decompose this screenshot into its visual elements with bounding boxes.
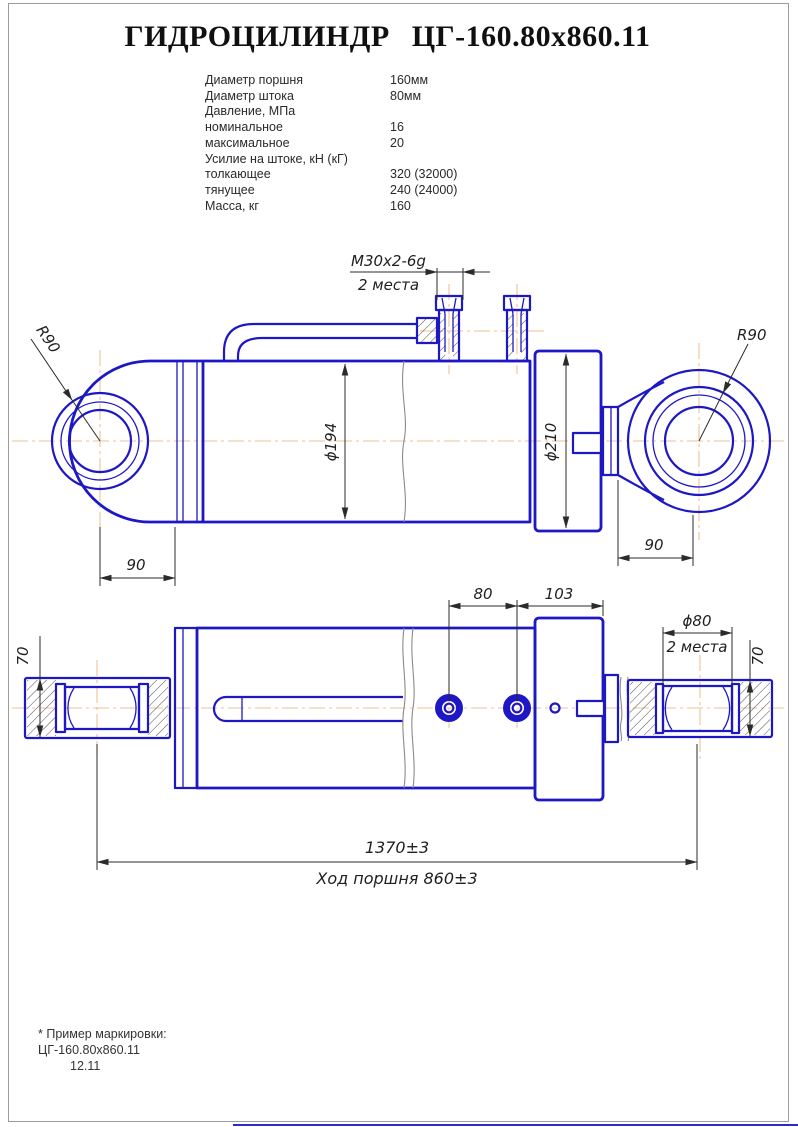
- drawing-page: ГИДРОЦИЛИНДР ЦГ-160.80х860.11 Диаметр по…: [0, 0, 798, 1127]
- head-key-top: [577, 701, 604, 716]
- label-piston-stroke: Ход поршня 860±3: [315, 869, 477, 888]
- tube-connector: [417, 318, 437, 343]
- label-pin-width-right: 90: [644, 536, 663, 554]
- oil-tube: [224, 324, 417, 361]
- label-pin-width-left: 90: [126, 556, 145, 574]
- label-thread-callout: М30х2-6g: [351, 252, 426, 270]
- head-key: [573, 433, 601, 453]
- side-view: [52, 296, 770, 531]
- label-port-spacing: 80: [473, 585, 492, 603]
- footnote-line-2: ЦГ-160.80х860.11: [38, 1042, 167, 1058]
- dimension-labels: М30х2-6g 2 места R90 R90 ϕ194 ϕ210 90 90…: [14, 252, 767, 888]
- label-pin-bore-places: 2 места: [666, 638, 727, 656]
- technical-drawing: М30х2-6g 2 места R90 R90 ϕ194 ϕ210 90 90…: [0, 0, 798, 1127]
- label-closed-length: 1370±3: [365, 838, 429, 857]
- label-head-diameter: ϕ210: [542, 423, 560, 462]
- label-thread-places: 2 места: [358, 276, 419, 294]
- bottom-edge-line: [233, 1124, 798, 1126]
- footnote-line-3: 12.11: [38, 1058, 167, 1074]
- label-radius-left: R90: [32, 322, 63, 357]
- marking-footnote: * Пример маркировки: ЦГ-160.80х860.11 12…: [38, 1026, 167, 1074]
- footnote-line-1: * Пример маркировки:: [38, 1026, 167, 1042]
- label-head-length: 103: [545, 585, 574, 603]
- label-eye-width-left: 70: [14, 646, 32, 665]
- label-radius-right: R90: [737, 326, 767, 344]
- top-view: [25, 618, 772, 800]
- label-bore-diameter: ϕ194: [322, 423, 340, 462]
- label-pin-bore-diameter: ϕ80: [683, 612, 712, 630]
- label-eye-width-right: 70: [749, 646, 767, 665]
